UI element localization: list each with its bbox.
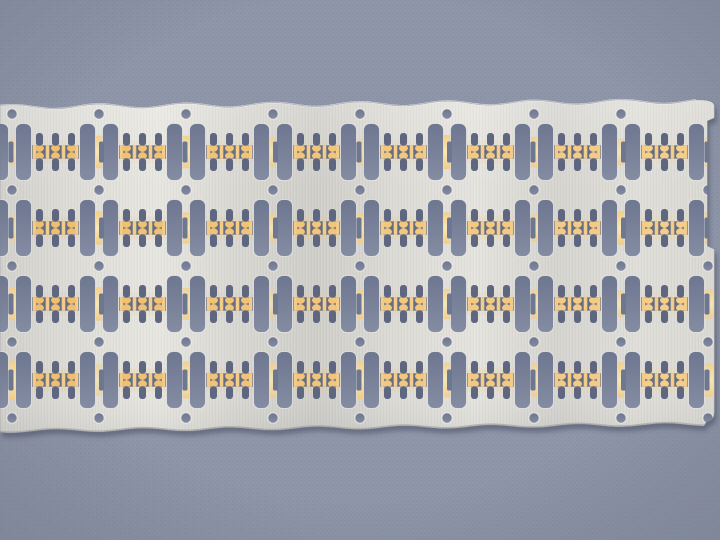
cluster-hole <box>558 158 565 171</box>
lead-slot <box>538 200 554 257</box>
slot-opening <box>0 352 9 409</box>
cluster-hole <box>400 209 407 222</box>
slot-opening <box>602 352 618 409</box>
cluster-hole <box>661 310 668 323</box>
cluster-hole <box>416 386 423 399</box>
slot-opening <box>341 276 357 333</box>
cluster-hole <box>226 158 233 171</box>
cluster-hole <box>471 285 478 298</box>
cluster-hole <box>297 386 304 399</box>
gold-lead-bar <box>671 145 675 158</box>
cluster-hole <box>645 386 652 399</box>
slot-opening <box>428 200 444 257</box>
cluster-hole <box>558 133 565 146</box>
cluster-hole <box>503 361 510 374</box>
cluster-hole <box>400 234 407 247</box>
slot-opening <box>625 124 641 181</box>
sprocket-hole <box>442 261 452 271</box>
cluster-hole <box>329 285 336 298</box>
gold-lead-bar <box>410 221 414 234</box>
slot-opening <box>254 200 270 257</box>
sprocket-hole <box>7 109 17 119</box>
cluster-hole <box>503 285 510 298</box>
gold-lead-bar <box>323 145 327 158</box>
slot-opening <box>428 124 444 181</box>
slot-notch <box>621 370 626 391</box>
cluster-hole <box>558 285 565 298</box>
lead-cluster <box>641 361 688 399</box>
gold-lead-bar <box>133 297 137 310</box>
cluster-hole <box>590 234 597 247</box>
cluster-hole <box>487 386 494 399</box>
cluster-hole <box>574 158 581 171</box>
slot-opening <box>341 124 357 181</box>
gold-lead-bar <box>46 297 50 310</box>
lead-cluster <box>554 285 601 323</box>
cluster-hole <box>123 234 130 247</box>
lead-cluster <box>467 209 514 247</box>
gold-lead-bar <box>149 145 153 158</box>
cluster-hole <box>155 158 162 171</box>
slot-notch <box>357 294 362 315</box>
cluster-hole <box>52 310 59 323</box>
cluster-hole <box>416 158 423 171</box>
cluster-hole <box>52 209 59 222</box>
slot-notch <box>99 370 104 391</box>
gold-lead-bar <box>236 221 240 234</box>
lead-slot <box>254 276 270 333</box>
cluster-hole <box>384 310 391 323</box>
gold-lead-bar <box>236 145 240 158</box>
cluster-hole <box>487 133 494 146</box>
cluster-hole <box>226 133 233 146</box>
slot-opening <box>689 124 705 181</box>
slot-notch <box>9 294 14 315</box>
cluster-hole <box>416 133 423 146</box>
sprocket-hole <box>616 261 626 271</box>
cluster-hole <box>487 285 494 298</box>
lead-cluster <box>641 285 688 323</box>
cluster-hole <box>36 386 43 399</box>
gold-lead-bar <box>655 145 659 158</box>
leadframe-plate <box>0 92 720 440</box>
cluster-hole <box>297 310 304 323</box>
cluster-hole <box>297 234 304 247</box>
cluster-hole <box>503 209 510 222</box>
cluster-hole <box>503 133 510 146</box>
cluster-hole <box>36 285 43 298</box>
lead-slot <box>364 276 380 333</box>
gold-lead-bar <box>671 297 675 310</box>
slot-opening <box>341 200 357 257</box>
cluster-hole <box>329 386 336 399</box>
cluster-hole <box>384 285 391 298</box>
cluster-hole <box>677 133 684 146</box>
cluster-hole <box>68 158 75 171</box>
cluster-hole <box>297 133 304 146</box>
cluster-hole <box>677 234 684 247</box>
cluster-hole <box>313 310 320 323</box>
lead-cluster <box>467 361 514 399</box>
lead-cluster <box>293 133 340 171</box>
slot-opening <box>277 200 293 257</box>
cluster-hole <box>52 234 59 247</box>
sprocket-hole <box>181 261 191 271</box>
gold-lead-bar <box>220 297 224 310</box>
lead-cluster <box>293 209 340 247</box>
slot-opening <box>428 352 444 409</box>
slot-opening <box>515 352 531 409</box>
cluster-hole <box>139 234 146 247</box>
slot-notch <box>447 218 452 239</box>
cluster-hole <box>471 361 478 374</box>
cluster-hole <box>36 209 43 222</box>
gold-lead-bar <box>671 221 675 234</box>
slot-opening <box>80 124 96 181</box>
cluster-hole <box>329 209 336 222</box>
slot-notch <box>9 142 14 163</box>
lead-cluster <box>206 133 253 171</box>
slot-opening <box>103 352 119 409</box>
slot-opening <box>602 200 618 257</box>
cluster-hole <box>471 158 478 171</box>
gold-lead-bar <box>410 145 414 158</box>
cluster-hole <box>645 209 652 222</box>
cluster-hole <box>384 158 391 171</box>
gold-lead-bar <box>584 221 588 234</box>
slot-notch <box>531 294 536 315</box>
lead-cluster <box>641 209 688 247</box>
cluster-hole <box>645 133 652 146</box>
cluster-hole <box>139 310 146 323</box>
cluster-hole <box>645 361 652 374</box>
cluster-hole <box>661 133 668 146</box>
cluster-hole <box>661 285 668 298</box>
cluster-hole <box>155 234 162 247</box>
cluster-hole <box>68 361 75 374</box>
cluster-hole <box>68 209 75 222</box>
lead-cluster <box>554 133 601 171</box>
lead-slot <box>190 352 206 409</box>
cluster-hole <box>242 209 249 222</box>
cluster-hole <box>313 209 320 222</box>
lead-slot <box>16 276 32 333</box>
cluster-hole <box>645 234 652 247</box>
slot-notch <box>183 218 188 239</box>
cluster-hole <box>36 361 43 374</box>
gold-lead-bar <box>133 373 137 386</box>
cluster-hole <box>574 285 581 298</box>
cluster-hole <box>155 133 162 146</box>
sprocket-hole <box>616 337 626 347</box>
lead-slot <box>538 276 554 333</box>
cluster-hole <box>155 361 162 374</box>
lead-cluster <box>206 285 253 323</box>
cluster-hole <box>416 361 423 374</box>
cluster-hole <box>400 386 407 399</box>
slot-notch <box>621 294 626 315</box>
cluster-hole <box>242 386 249 399</box>
lead-slot <box>16 200 32 257</box>
cluster-hole <box>123 285 130 298</box>
lead-cluster <box>554 361 601 399</box>
slot-opening <box>16 124 32 181</box>
gold-lead-bar <box>568 221 572 234</box>
slot-notch <box>357 370 362 391</box>
cluster-hole <box>416 310 423 323</box>
slot-opening <box>80 200 96 257</box>
lead-slot <box>80 200 96 257</box>
slot-notch <box>183 294 188 315</box>
lead-slot <box>364 352 380 409</box>
cluster-hole <box>313 133 320 146</box>
cluster-hole <box>313 285 320 298</box>
cluster-hole <box>313 234 320 247</box>
lead-slot <box>602 276 618 333</box>
lead-cluster <box>293 285 340 323</box>
slot-opening <box>689 352 705 409</box>
gold-lead-bar <box>323 297 327 310</box>
lead-slot <box>80 276 96 333</box>
slot-notch <box>531 142 536 163</box>
cluster-hole <box>226 285 233 298</box>
cluster-hole <box>242 285 249 298</box>
slot-opening <box>0 200 9 257</box>
sprocket-hole <box>94 337 104 347</box>
slot-notch <box>705 294 710 315</box>
gold-lead-bar <box>236 373 240 386</box>
cluster-hole <box>471 310 478 323</box>
cluster-hole <box>558 310 565 323</box>
gold-lead-bar <box>236 297 240 310</box>
gold-lead-bar <box>307 145 311 158</box>
sprocket-hole <box>268 109 278 119</box>
cluster-hole <box>226 361 233 374</box>
cluster-hole <box>590 310 597 323</box>
lead-cluster <box>467 285 514 323</box>
cluster-hole <box>297 285 304 298</box>
sprocket-hole <box>529 413 539 423</box>
lead-cluster <box>293 361 340 399</box>
cluster-hole <box>677 386 684 399</box>
slot-opening <box>538 124 554 181</box>
sprocket-hole <box>355 261 365 271</box>
sprocket-hole <box>355 337 365 347</box>
cluster-hole <box>139 158 146 171</box>
slot-opening <box>0 276 9 333</box>
slot-opening <box>625 276 641 333</box>
sprocket-hole <box>268 337 278 347</box>
cluster-hole <box>123 133 130 146</box>
sprocket-hole <box>355 109 365 119</box>
gold-lead-bar <box>149 373 153 386</box>
gold-lead-bar <box>149 221 153 234</box>
cluster-hole <box>210 133 217 146</box>
gold-lead-bar <box>497 297 501 310</box>
gold-lead-bar <box>584 297 588 310</box>
sprocket-hole <box>94 261 104 271</box>
cluster-hole <box>645 285 652 298</box>
sprocket-hole <box>442 337 452 347</box>
cluster-hole <box>487 310 494 323</box>
slot-opening <box>625 352 641 409</box>
gold-lead-bar <box>307 297 311 310</box>
cluster-hole <box>677 310 684 323</box>
slot-opening <box>16 276 32 333</box>
lead-slot <box>538 352 554 409</box>
cluster-hole <box>677 158 684 171</box>
cluster-hole <box>677 285 684 298</box>
slot-opening <box>190 200 206 257</box>
cluster-hole <box>155 209 162 222</box>
sprocket-hole <box>529 337 539 347</box>
slot-opening <box>341 352 357 409</box>
cluster-hole <box>139 133 146 146</box>
gold-lead-bar <box>220 221 224 234</box>
slot-opening <box>16 352 32 409</box>
slot-notch <box>447 370 452 391</box>
lead-slot <box>428 276 444 333</box>
slot-opening <box>451 352 467 409</box>
lead-slot <box>80 124 96 181</box>
cluster-hole <box>471 234 478 247</box>
slot-opening <box>254 124 270 181</box>
lead-cluster <box>32 209 79 247</box>
gold-lead-bar <box>497 221 501 234</box>
gold-lead-bar <box>394 221 398 234</box>
cluster-hole <box>52 386 59 399</box>
cluster-hole <box>558 209 565 222</box>
sprocket-hole <box>268 413 278 423</box>
slot-opening <box>602 276 618 333</box>
gold-lead-bar <box>584 373 588 386</box>
gold-lead-bar <box>133 145 137 158</box>
cluster-hole <box>590 386 597 399</box>
cluster-hole <box>297 209 304 222</box>
cluster-hole <box>384 133 391 146</box>
cluster-hole <box>590 361 597 374</box>
lead-slot <box>190 124 206 181</box>
sprocket-hole <box>616 109 626 119</box>
sprocket-hole <box>181 337 191 347</box>
slot-opening <box>602 124 618 181</box>
cluster-hole <box>487 158 494 171</box>
lead-cluster <box>119 133 166 171</box>
gold-lead-bar <box>46 373 50 386</box>
cluster-hole <box>677 361 684 374</box>
cluster-hole <box>210 361 217 374</box>
sprocket-hole <box>268 261 278 271</box>
cluster-hole <box>487 361 494 374</box>
slot-opening <box>277 276 293 333</box>
slot-opening <box>103 276 119 333</box>
sprocket-hole <box>355 413 365 423</box>
slot-opening <box>16 200 32 257</box>
cluster-hole <box>384 386 391 399</box>
slot-opening <box>538 200 554 257</box>
slot-notch <box>273 294 278 315</box>
cluster-hole <box>52 158 59 171</box>
gold-lead-bar <box>133 221 137 234</box>
slot-notch <box>9 218 14 239</box>
cluster-hole <box>574 234 581 247</box>
cluster-hole <box>123 310 130 323</box>
scene-svg: Stamped metal semiconductor lead frame s… <box>0 0 720 540</box>
cluster-hole <box>487 234 494 247</box>
lead-cluster <box>380 285 427 323</box>
gold-lead-bar <box>62 373 66 386</box>
cluster-hole <box>416 234 423 247</box>
cluster-hole <box>574 386 581 399</box>
cluster-hole <box>36 158 43 171</box>
slot-notch <box>447 294 452 315</box>
gold-lead-bar <box>481 145 485 158</box>
cluster-hole <box>313 158 320 171</box>
slot-opening <box>364 276 380 333</box>
gold-lead-bar <box>410 373 414 386</box>
cluster-hole <box>677 209 684 222</box>
cluster-hole <box>384 209 391 222</box>
slot-opening <box>167 124 183 181</box>
cluster-hole <box>645 310 652 323</box>
sprocket-hole <box>181 413 191 423</box>
lead-slot <box>80 352 96 409</box>
gold-lead-bar <box>497 145 501 158</box>
lead-slot <box>364 124 380 181</box>
sprocket-hole <box>181 109 191 119</box>
lead-cluster <box>380 209 427 247</box>
lead-slot <box>428 124 444 181</box>
slot-notch <box>273 370 278 391</box>
lead-slot <box>602 124 618 181</box>
cluster-hole <box>590 133 597 146</box>
cluster-hole <box>123 361 130 374</box>
cluster-hole <box>487 209 494 222</box>
cluster-hole <box>155 285 162 298</box>
slot-notch <box>357 218 362 239</box>
cluster-hole <box>68 285 75 298</box>
sprocket-hole <box>7 413 17 423</box>
cluster-hole <box>68 386 75 399</box>
cluster-hole <box>661 158 668 171</box>
cluster-hole <box>400 310 407 323</box>
slot-opening <box>515 124 531 181</box>
slot-opening <box>364 352 380 409</box>
gold-lead-bar <box>62 297 66 310</box>
slot-opening <box>538 352 554 409</box>
sprocket-hole <box>355 185 365 195</box>
slot-opening <box>254 352 270 409</box>
gold-lead-bar <box>568 297 572 310</box>
cluster-hole <box>226 386 233 399</box>
cluster-hole <box>242 234 249 247</box>
slot-notch <box>357 142 362 163</box>
cluster-hole <box>590 209 597 222</box>
cluster-hole <box>329 361 336 374</box>
cluster-hole <box>661 234 668 247</box>
slot-opening <box>190 352 206 409</box>
gold-lead-bar <box>584 145 588 158</box>
sprocket-hole <box>94 109 104 119</box>
slot-notch <box>531 218 536 239</box>
cluster-hole <box>471 133 478 146</box>
cluster-hole <box>123 158 130 171</box>
cluster-hole <box>36 234 43 247</box>
gold-lead-bar <box>655 221 659 234</box>
cluster-hole <box>68 133 75 146</box>
slot-opening <box>190 276 206 333</box>
lead-cluster <box>380 361 427 399</box>
